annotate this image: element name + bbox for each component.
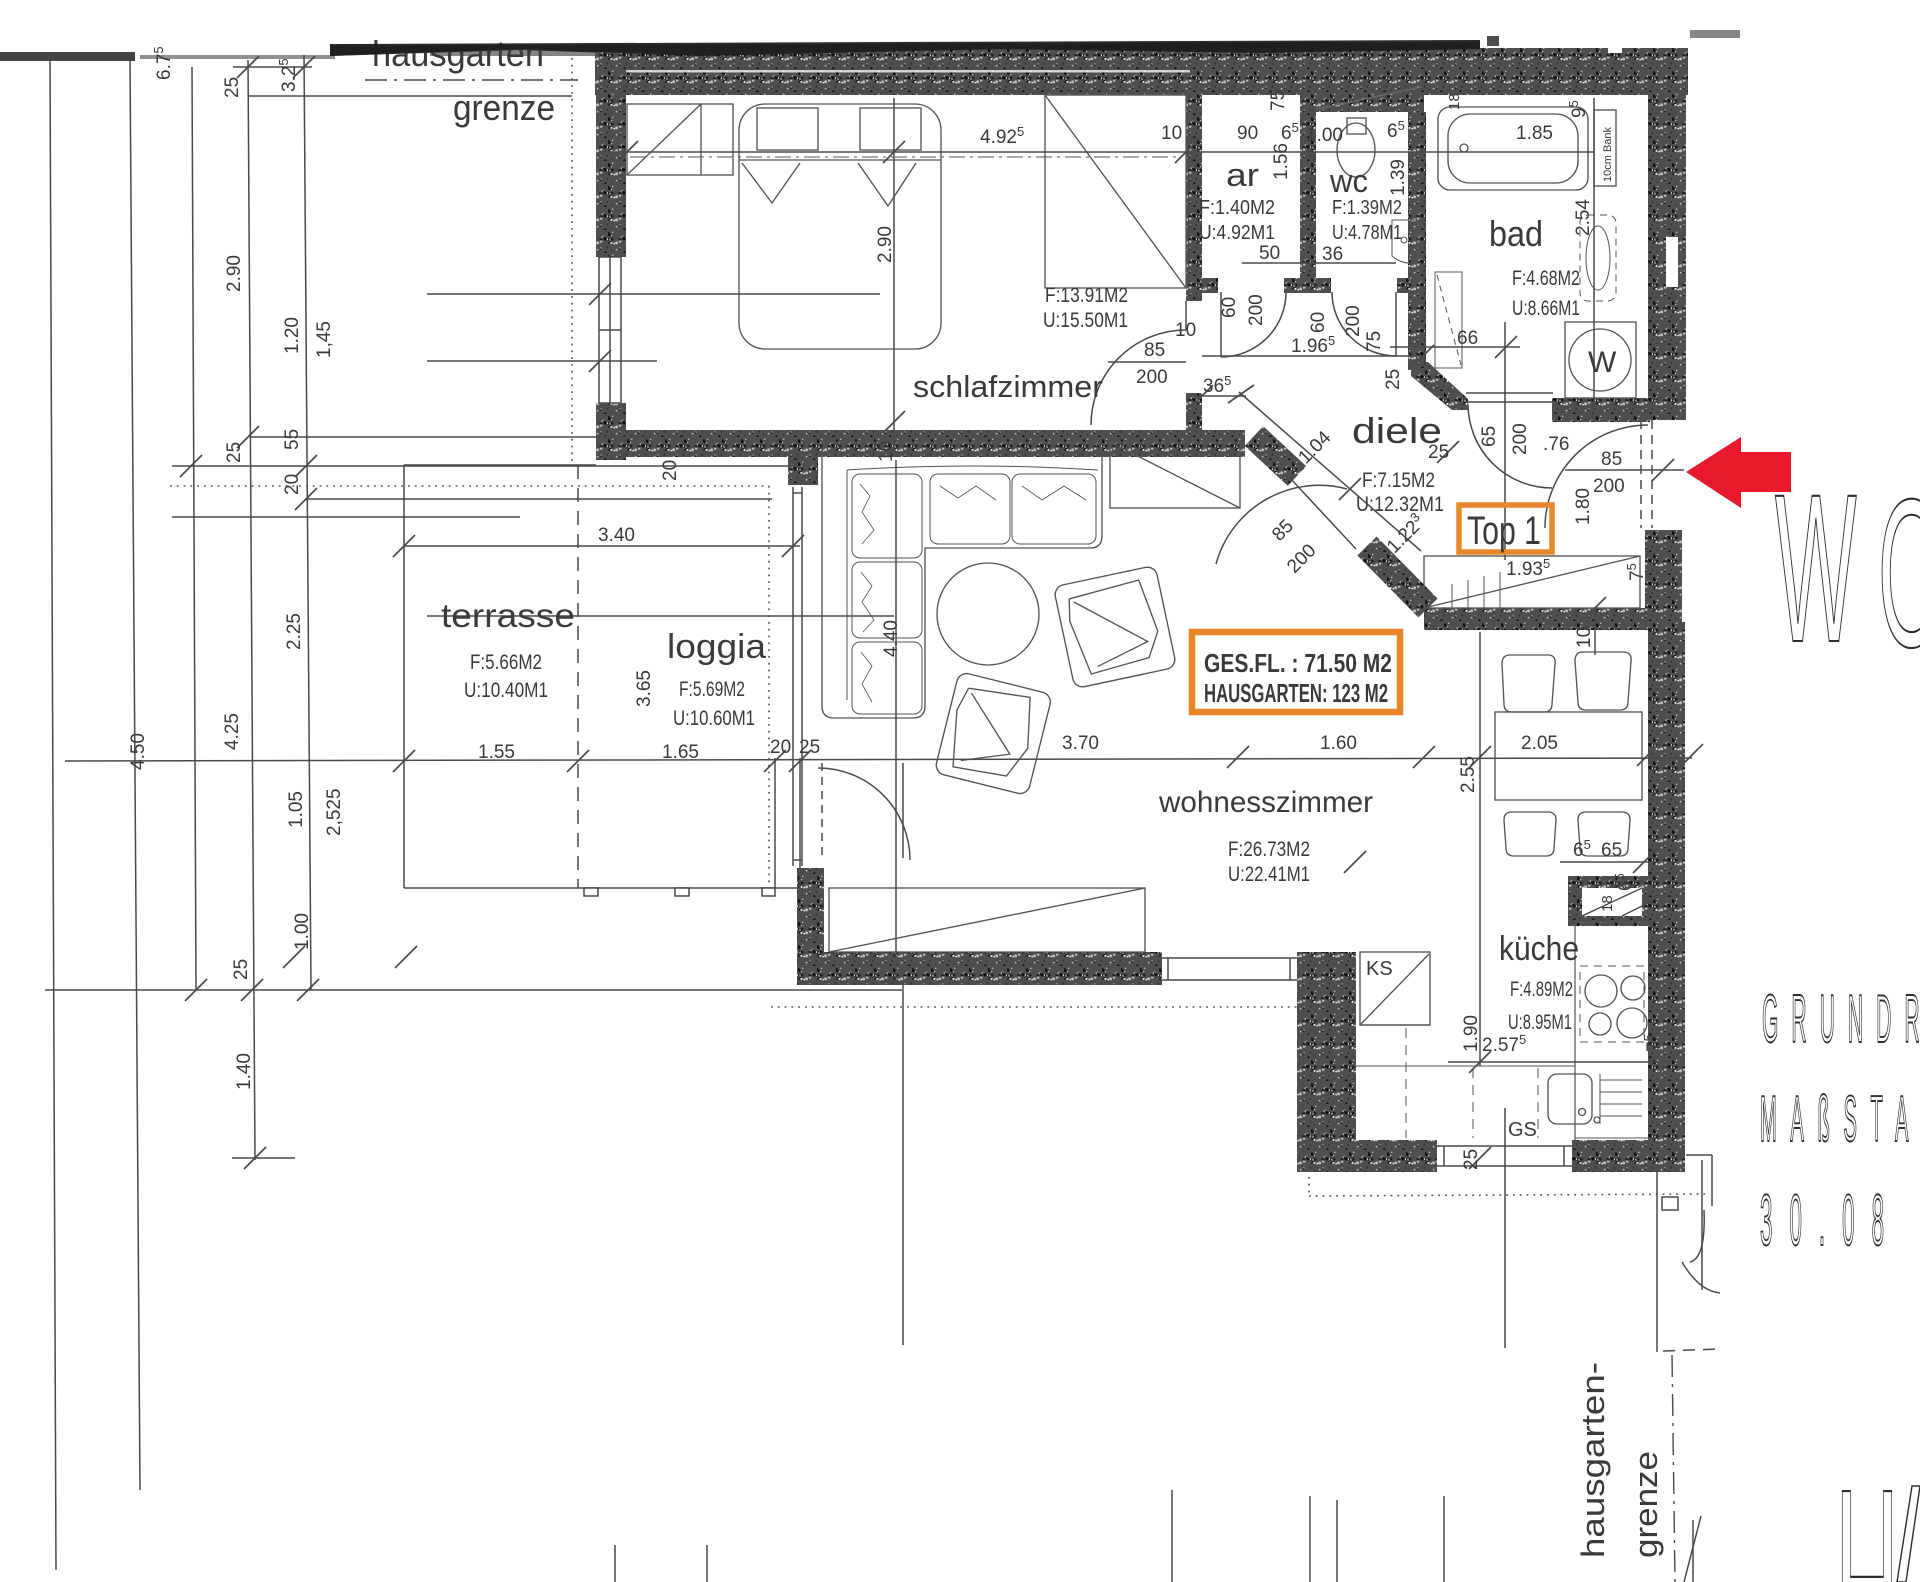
svg-text:55: 55	[282, 429, 303, 450]
svg-text:2.55: 2.55	[1458, 756, 1479, 793]
svg-text:65: 65	[1479, 426, 1500, 447]
svg-text:2.25: 2.25	[284, 613, 305, 650]
svg-text:terrasse: terrasse	[441, 597, 575, 634]
svg-text:2.90: 2.90	[875, 226, 896, 263]
svg-text:10cm Bank: 10cm Bank	[1602, 126, 1614, 182]
svg-text:GES.FL. : 71.50 M2: GES.FL. : 71.50 M2	[1204, 648, 1392, 678]
svg-text:85: 85	[1144, 340, 1165, 361]
svg-text:3.70: 3.70	[1062, 733, 1099, 754]
svg-text:60: 60	[1308, 312, 1329, 333]
svg-text:4.40: 4.40	[881, 620, 902, 657]
svg-text:60: 60	[1219, 297, 1240, 318]
svg-text:GS: GS	[1508, 1119, 1537, 1141]
svg-text:10: 10	[1161, 123, 1182, 144]
svg-text:2.05: 2.05	[1521, 733, 1558, 754]
svg-text:O: O	[1878, 456, 1920, 692]
svg-text:1.20: 1.20	[282, 317, 303, 354]
svg-text:W: W	[1775, 451, 1857, 687]
svg-text:F:5.66M2: F:5.66M2	[470, 651, 542, 674]
svg-text:schlafzimmer: schlafzimmer	[913, 369, 1103, 404]
svg-text:2,525: 2,525	[324, 788, 345, 836]
svg-text:200: 200	[1246, 294, 1267, 326]
svg-text:20: 20	[282, 474, 303, 495]
svg-text:grenze: grenze	[453, 87, 555, 128]
svg-text:10: 10	[876, 441, 897, 462]
svg-text:1.55: 1.55	[478, 742, 515, 763]
svg-text:U:10.40M1: U:10.40M1	[464, 679, 548, 702]
svg-text:1.90: 1.90	[1461, 1015, 1482, 1052]
svg-text:200: 200	[1510, 423, 1531, 455]
svg-text:F:1.40M2: F:1.40M2	[1199, 197, 1275, 219]
svg-text:65: 65	[1601, 840, 1622, 861]
svg-text:20: 20	[660, 460, 681, 481]
svg-text:25: 25	[224, 442, 245, 463]
svg-text:200: 200	[1343, 305, 1364, 337]
svg-text:18: 18	[1446, 93, 1463, 110]
svg-text:grenze: grenze	[1628, 1451, 1664, 1558]
svg-text:25: 25	[1428, 442, 1449, 463]
svg-text:U:22.41M1: U:22.41M1	[1228, 863, 1310, 886]
svg-text:loggia: loggia	[667, 628, 766, 666]
svg-text:75: 75	[1364, 331, 1385, 352]
svg-text:66: 66	[1457, 328, 1478, 349]
svg-text:U:8.66M1: U:8.66M1	[1512, 297, 1580, 320]
svg-text:F:1.39M2: F:1.39M2	[1332, 197, 1402, 219]
svg-text:18: 18	[1599, 895, 1616, 912]
svg-text:KS: KS	[1366, 958, 1393, 980]
svg-text:200: 200	[1593, 476, 1625, 497]
svg-text:25: 25	[799, 737, 820, 758]
svg-text:.76: .76	[1543, 434, 1569, 455]
svg-text:hausgarten-: hausgarten-	[1575, 1362, 1611, 1558]
svg-text:ar: ar	[1226, 157, 1259, 193]
svg-text:F:26.73M2: F:26.73M2	[1228, 838, 1310, 861]
svg-text:4.50: 4.50	[128, 733, 149, 770]
svg-text:U:15.50M1: U:15.50M1	[1043, 309, 1128, 332]
svg-text:wohnesszimmer: wohnesszimmer	[1158, 786, 1373, 819]
svg-text:küche: küche	[1499, 930, 1579, 968]
svg-text:36: 36	[1322, 244, 1343, 265]
svg-text:HAUSGARTEN: 123 M2: HAUSGARTEN: 123 M2	[1204, 678, 1388, 708]
svg-text:F:7.15M2: F:7.15M2	[1362, 469, 1435, 492]
svg-text:4.25: 4.25	[222, 713, 243, 750]
svg-text:F:4.89M2: F:4.89M2	[1510, 978, 1573, 1001]
svg-text:75: 75	[1268, 90, 1289, 111]
svg-text:H: H	[1835, 1429, 1899, 1582]
svg-text:wc: wc	[1329, 163, 1368, 199]
svg-text:1.65: 1.65	[662, 742, 699, 763]
svg-text:U:4.78M1: U:4.78M1	[1332, 222, 1402, 244]
svg-text:85: 85	[1601, 449, 1622, 470]
svg-text:MAßSTAB: MAßSTAB	[1760, 1083, 1920, 1156]
svg-text:1.40: 1.40	[234, 1053, 255, 1090]
svg-text:25: 25	[231, 959, 252, 980]
svg-text:W: W	[1588, 346, 1617, 379]
svg-text:10: 10	[1574, 627, 1595, 648]
svg-text:U:10.60M1: U:10.60M1	[673, 707, 755, 730]
svg-text:2.90: 2.90	[224, 255, 245, 292]
svg-text:90: 90	[1237, 123, 1258, 144]
svg-text:bad: bad	[1489, 213, 1543, 254]
svg-text:GRUNDR: GRUNDR	[1762, 980, 1920, 1057]
svg-text:F:5.69M2: F:5.69M2	[679, 678, 745, 701]
svg-text:1,45: 1,45	[314, 321, 335, 358]
svg-text:10: 10	[1175, 320, 1196, 341]
svg-text:1.80: 1.80	[1573, 488, 1594, 525]
svg-text:U:12.32M1: U:12.32M1	[1356, 493, 1444, 516]
svg-text:30.08: 30.08	[1760, 1182, 1901, 1262]
svg-text:25: 25	[1461, 1149, 1482, 1170]
svg-text:50: 50	[1259, 243, 1280, 264]
svg-text:1.39: 1.39	[1388, 159, 1409, 196]
svg-text:1.85: 1.85	[1516, 123, 1553, 144]
svg-text:1.00: 1.00	[292, 913, 313, 950]
svg-text:200: 200	[1136, 367, 1168, 388]
svg-text:20: 20	[770, 737, 791, 758]
svg-text:Top 1: Top 1	[1467, 509, 1541, 553]
svg-text:U:8.95M1: U:8.95M1	[1508, 1011, 1572, 1034]
svg-text:25: 25	[222, 77, 243, 98]
svg-text:2.54: 2.54	[1573, 199, 1594, 236]
svg-text:1.05: 1.05	[286, 791, 307, 828]
svg-text:25: 25	[1383, 369, 1404, 390]
svg-text:3.65: 3.65	[634, 670, 655, 707]
svg-text:F:13.91M2: F:13.91M2	[1045, 284, 1128, 307]
svg-text:3.40: 3.40	[598, 525, 635, 546]
svg-text:1.00: 1.00	[1306, 125, 1343, 146]
svg-text:1.56: 1.56	[1271, 143, 1292, 180]
svg-text:U:4.92M1: U:4.92M1	[1199, 222, 1275, 244]
svg-text:1.60: 1.60	[1320, 733, 1357, 754]
svg-text:F:4.68M2: F:4.68M2	[1512, 267, 1580, 290]
